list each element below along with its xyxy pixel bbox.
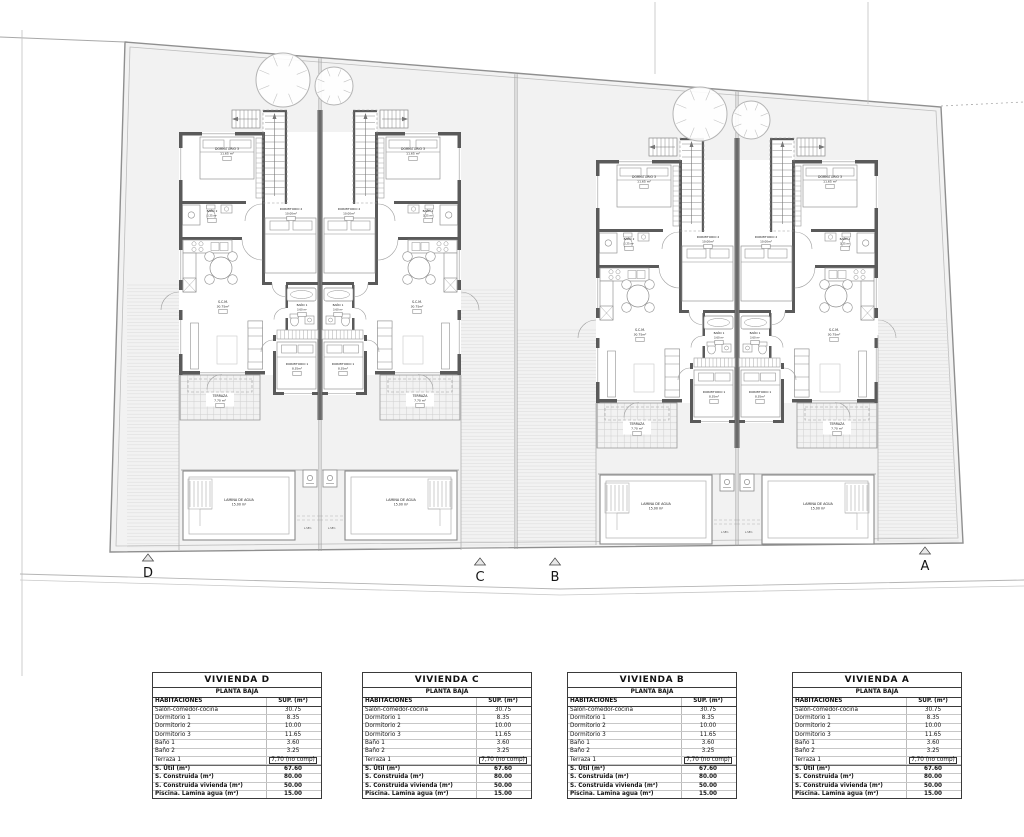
section-arrow-icon bbox=[143, 554, 154, 561]
chair-glyph bbox=[645, 280, 655, 290]
room-tag-box bbox=[841, 246, 849, 250]
table-row: Terraza 17,70 (no comp) bbox=[793, 757, 961, 765]
room-label-cell: Piscina. Lamina agua (m²) bbox=[155, 792, 266, 798]
chair-glyph bbox=[843, 303, 853, 313]
room-label-banio2: BAÑO 23.25 m² bbox=[624, 236, 635, 251]
area-value-cell: 30.75 bbox=[266, 707, 319, 714]
table-row: Baño 23.25 bbox=[568, 749, 736, 757]
bathtub-glyph bbox=[287, 288, 316, 301]
header-superficie: SUP. (m²) bbox=[476, 698, 529, 706]
room-label-banio1: BAÑO 13.60 m² bbox=[333, 302, 344, 317]
table-row: Baño 23.25 bbox=[363, 749, 531, 757]
room-label-cell: Baño 2 bbox=[795, 749, 906, 755]
area-value-cell: 7,70 (no comp) bbox=[681, 757, 734, 764]
room-label-cell: Dormitorio 2 bbox=[795, 724, 906, 730]
table-row: Dormitorio 18.35 bbox=[153, 715, 321, 723]
room-label-cell: Baño 2 bbox=[365, 749, 476, 755]
pool-equipment-box bbox=[720, 474, 734, 491]
room-label-banio2: BAÑO 23.25 m² bbox=[840, 236, 851, 251]
room-label-cell: S. Construida (m²) bbox=[795, 775, 906, 781]
room-tag-box bbox=[223, 156, 231, 160]
table-row: Salón-comedor-cocina30.75 bbox=[568, 707, 736, 715]
header-superficie: SUP. (m²) bbox=[681, 698, 734, 706]
section-marker-label: C bbox=[475, 570, 484, 585]
room-tag-box bbox=[216, 403, 224, 407]
pool-equipment-box bbox=[323, 470, 337, 487]
room-name-text: BAÑO 1 bbox=[714, 330, 725, 335]
room-area-text: 11.65 m² bbox=[406, 151, 420, 155]
bed-glyph-dormitorio-2 bbox=[265, 218, 316, 273]
area-value-cell: 8.35 bbox=[906, 715, 959, 722]
chair-glyph bbox=[228, 252, 238, 262]
area-value-cell: 3.25 bbox=[476, 749, 529, 756]
area-value-cell: 7,70 (no comp) bbox=[906, 757, 959, 764]
table-row: S. Construida vivienda (m²)50.00 bbox=[363, 783, 531, 791]
room-area-text: 8.35m² bbox=[709, 394, 719, 398]
room-label-cell: Terraza 1 bbox=[365, 758, 476, 764]
room-label-cell: S. Construida (m²) bbox=[365, 775, 476, 781]
room-tag-box bbox=[339, 371, 347, 375]
table-row: Baño 23.25 bbox=[793, 749, 961, 757]
room-label-banio1: BAÑO 13.60 m² bbox=[297, 302, 308, 317]
area-value-cell: 67.60 bbox=[906, 766, 959, 773]
area-value-cell: 80.00 bbox=[476, 774, 529, 781]
room-label-banio1: BAÑO 13.60 m² bbox=[750, 330, 761, 345]
room-label-terraza: TERRAZA7.70 m² bbox=[206, 393, 234, 408]
room-label-terraza: TERRAZA7.70 m² bbox=[406, 393, 434, 408]
table-title: VIVIENDA A bbox=[793, 673, 961, 688]
area-value-cell: 11.65 bbox=[906, 732, 959, 739]
room-area-text: 3.25 m² bbox=[207, 213, 217, 217]
chair-glyph bbox=[205, 252, 215, 262]
table-row: Dormitorio 210.00 bbox=[363, 724, 531, 732]
adjacent-boundary-line bbox=[0, 37, 125, 42]
area-value-cell: 3.25 bbox=[906, 749, 959, 756]
room-area-text: 30.75m² bbox=[828, 332, 842, 336]
area-value-cell: 50.00 bbox=[906, 783, 959, 790]
chair-glyph bbox=[426, 275, 436, 285]
pool-section-note: L.SEC. bbox=[328, 526, 336, 530]
table-row: Dormitorio 311.65 bbox=[793, 732, 961, 740]
room-tag-box bbox=[219, 309, 227, 313]
area-value-cell: 3.60 bbox=[681, 740, 734, 747]
table-row: Salón-comedor-cocina30.75 bbox=[363, 707, 531, 715]
area-value-cell: 8.35 bbox=[476, 715, 529, 722]
table-row: Dormitorio 311.65 bbox=[363, 732, 531, 740]
table-row: Dormitorio 210.00 bbox=[568, 724, 736, 732]
room-label-cell: Dormitorio 1 bbox=[570, 716, 681, 722]
area-value-cell: 3.25 bbox=[681, 749, 734, 756]
section-arrow-icon bbox=[475, 558, 486, 565]
section-arrow-icon bbox=[550, 558, 561, 565]
room-area-text: 8.35m² bbox=[755, 394, 765, 398]
room-area-text: 30.75m² bbox=[411, 304, 425, 308]
section-marker-a: A bbox=[920, 547, 931, 574]
bathtub-glyph bbox=[704, 316, 733, 329]
room-label-terraza: TERRAZA7.70 m² bbox=[623, 421, 651, 436]
chair-glyph bbox=[622, 303, 632, 313]
table-row: Terraza 17,70 (no comp) bbox=[363, 757, 531, 765]
room-name-text: BAÑO 1 bbox=[297, 302, 308, 307]
sink-glyph bbox=[825, 233, 836, 241]
chair-glyph bbox=[820, 280, 830, 290]
room-label-cell: Salón-comedor-cocina bbox=[155, 708, 266, 714]
sink-glyph bbox=[305, 316, 314, 324]
sink-glyph bbox=[408, 205, 419, 213]
room-tag-box bbox=[287, 216, 295, 220]
room-label-dormitorio1: DORMITORIO 18.35m² bbox=[329, 361, 357, 376]
pool-equipment-box bbox=[740, 474, 754, 491]
chair-glyph bbox=[426, 252, 436, 262]
room-label-cell: Terraza 1 bbox=[795, 758, 906, 764]
room-area-text: 15.00 m² bbox=[232, 502, 247, 506]
room-area-text: 7.70 m² bbox=[214, 398, 227, 402]
bed-glyph-dormitorio-2 bbox=[741, 246, 792, 301]
room-area-text: 3.60 m² bbox=[297, 307, 307, 311]
table-row: Dormitorio 311.65 bbox=[153, 732, 321, 740]
tv-sideboard-glyph bbox=[191, 323, 199, 369]
pool-equipment-box bbox=[303, 470, 317, 487]
chair-glyph bbox=[843, 280, 853, 290]
section-markers: D C B A bbox=[143, 547, 931, 585]
table-header-row: HABITACIONESSUP. (m²) bbox=[793, 698, 961, 707]
area-value-cell: 30.75 bbox=[681, 707, 734, 714]
room-label-cell: S. Construida vivienda (m²) bbox=[795, 784, 906, 790]
boxed-value: 7,70 (no comp) bbox=[684, 757, 733, 765]
boxed-value: 7,70 (no comp) bbox=[479, 757, 528, 765]
chair-glyph bbox=[622, 280, 632, 290]
pool-section-note: L.SEC. bbox=[721, 530, 729, 534]
room-tag-box bbox=[826, 184, 834, 188]
header-habitaciones: HABITACIONES bbox=[795, 699, 906, 705]
table-header-row: HABITACIONESSUP. (m²) bbox=[363, 698, 531, 707]
room-label-cell: S. Útil (m²) bbox=[155, 767, 266, 773]
room-label-cell: S. Útil (m²) bbox=[365, 767, 476, 773]
table-row: S. Construida (m²)80.00 bbox=[793, 774, 961, 782]
table-row: Baño 13.60 bbox=[793, 740, 961, 748]
area-value-cell: 67.60 bbox=[266, 766, 319, 773]
room-label-dormitorio1: DORMITORIO 18.35m² bbox=[283, 361, 311, 376]
room-area-text: 15.00 m² bbox=[811, 506, 826, 510]
room-label-cell: S. Construida (m²) bbox=[570, 775, 681, 781]
table-row: Salón-comedor-cocina30.75 bbox=[793, 707, 961, 715]
section-marker-label: D bbox=[143, 566, 153, 581]
bed-glyph-dormitorio-2 bbox=[324, 218, 375, 273]
table-row: Piscina. Lamina agua (m²)15.00 bbox=[793, 791, 961, 798]
sink-glyph bbox=[221, 205, 232, 213]
room-tag-box bbox=[413, 309, 421, 313]
room-tag-box bbox=[640, 184, 648, 188]
room-label-cell: Dormitorio 3 bbox=[365, 733, 476, 739]
room-area-text: 30.75m² bbox=[634, 332, 648, 336]
room-area-text: 3.60 m² bbox=[750, 335, 760, 339]
chair-glyph bbox=[645, 303, 655, 313]
table-row: Baño 23.25 bbox=[153, 749, 321, 757]
room-tag-box bbox=[751, 340, 759, 344]
drawing-sheet: DORMITORIO 311.65 m²BAÑO 23.25 m²DORMITO… bbox=[0, 0, 1024, 837]
room-tag-box bbox=[334, 312, 342, 316]
area-value-cell: 15.00 bbox=[681, 791, 734, 798]
room-name-text: BAÑO 1 bbox=[333, 302, 344, 307]
room-label-banio2: BAÑO 23.25 m² bbox=[423, 208, 434, 223]
room-area-text: 3.25 m² bbox=[624, 241, 634, 245]
room-label-cell: S. Construida vivienda (m²) bbox=[365, 784, 476, 790]
table-row: Baño 13.60 bbox=[153, 740, 321, 748]
area-value-cell: 10.00 bbox=[476, 724, 529, 731]
room-tag-box bbox=[636, 337, 644, 341]
room-area-text: 8.35m² bbox=[292, 366, 302, 370]
room-label-cell: Salón-comedor-cocina bbox=[570, 708, 681, 714]
room-label-terraza: TERRAZA7.70 m² bbox=[823, 421, 851, 436]
tree-icon bbox=[315, 67, 353, 105]
table-title: VIVIENDA C bbox=[363, 673, 531, 688]
section-marker-b: B bbox=[550, 558, 561, 585]
area-value-cell: 3.60 bbox=[906, 740, 959, 747]
area-table-vivienda-c: VIVIENDA CPLANTA BAJAHABITACIONESSUP. (m… bbox=[362, 672, 532, 799]
room-label-cell: S. Construida vivienda (m²) bbox=[155, 784, 266, 790]
room-tag-box bbox=[416, 403, 424, 407]
room-area-text: 7.70 m² bbox=[831, 426, 844, 430]
area-value-cell: 7,70 (no comp) bbox=[476, 757, 529, 764]
table-row: Piscina. Lamina agua (m²)15.00 bbox=[568, 791, 736, 798]
room-name-text: BAÑO 2 bbox=[423, 208, 434, 213]
tree-icon bbox=[256, 53, 310, 107]
chair-glyph bbox=[205, 275, 215, 285]
area-value-cell: 15.00 bbox=[906, 791, 959, 798]
room-label-banio2: BAÑO 23.25 m² bbox=[207, 208, 218, 223]
room-label-cell: Baño 1 bbox=[365, 741, 476, 747]
room-label-cell: Dormitorio 1 bbox=[795, 716, 906, 722]
room-area-text: 8.35m² bbox=[338, 366, 348, 370]
room-area-text: 30.75m² bbox=[217, 304, 231, 308]
boxed-value: 7,70 (no comp) bbox=[269, 757, 318, 765]
section-arrow-icon bbox=[920, 547, 931, 554]
room-name-text: BAÑO 2 bbox=[207, 208, 218, 213]
area-value-cell: 10.00 bbox=[266, 724, 319, 731]
area-value-cell: 7,70 (no comp) bbox=[266, 757, 319, 764]
room-tag-box bbox=[293, 371, 301, 375]
room-label-cell: Dormitorio 3 bbox=[155, 733, 266, 739]
room-area-text: 15.00 m² bbox=[394, 502, 409, 506]
chair-glyph bbox=[403, 275, 413, 285]
area-value-cell: 30.75 bbox=[476, 707, 529, 714]
room-label-cell: S. Útil (m²) bbox=[570, 767, 681, 773]
section-marker-label: B bbox=[551, 570, 560, 585]
sink-glyph bbox=[326, 316, 335, 324]
table-title: VIVIENDA B bbox=[568, 673, 736, 688]
table-row: S. Construida vivienda (m²)50.00 bbox=[793, 783, 961, 791]
room-label-cell: Terraza 1 bbox=[570, 758, 681, 764]
area-value-cell: 15.00 bbox=[476, 791, 529, 798]
area-value-cell: 15.00 bbox=[266, 791, 319, 798]
room-area-text: 3.25 m² bbox=[840, 241, 850, 245]
room-label-cell: Dormitorio 2 bbox=[570, 724, 681, 730]
room-area-text: 15.00 m² bbox=[649, 506, 664, 510]
area-value-cell: 30.75 bbox=[906, 707, 959, 714]
table-subtitle: PLANTA BAJA bbox=[568, 688, 736, 699]
table-row: Terraza 17,70 (no comp) bbox=[153, 757, 321, 765]
chair-glyph bbox=[403, 252, 413, 262]
room-tag-box bbox=[409, 156, 417, 160]
area-value-cell: 67.60 bbox=[476, 766, 529, 773]
table-row: Baño 13.60 bbox=[568, 740, 736, 748]
room-area-text: 3.60 m² bbox=[333, 307, 343, 311]
room-tag-box bbox=[830, 337, 838, 341]
area-value-cell: 8.35 bbox=[681, 715, 734, 722]
bathtub-glyph bbox=[324, 288, 353, 301]
room-label-cell: Salón-comedor-cocina bbox=[365, 708, 476, 714]
room-area-text: 10.00m² bbox=[702, 239, 714, 243]
room-label-cell: Baño 1 bbox=[795, 741, 906, 747]
room-area-text: 11.65 m² bbox=[823, 179, 837, 183]
area-value-cell: 8.35 bbox=[266, 715, 319, 722]
area-value-cell: 11.65 bbox=[476, 732, 529, 739]
area-value-cell: 80.00 bbox=[681, 774, 734, 781]
room-tag-box bbox=[715, 340, 723, 344]
sink-glyph bbox=[722, 344, 731, 352]
room-label-cell: Dormitorio 3 bbox=[795, 733, 906, 739]
tv-sideboard-glyph bbox=[859, 351, 867, 397]
road-line-upper bbox=[20, 574, 1024, 589]
area-value-cell: 50.00 bbox=[266, 783, 319, 790]
room-tag-box bbox=[762, 244, 770, 248]
room-tag-box bbox=[833, 431, 841, 435]
sink-glyph bbox=[743, 344, 752, 352]
room-label-cell: Terraza 1 bbox=[155, 758, 266, 764]
room-label-dormitorio1: DORMITORIO 18.35m² bbox=[746, 389, 774, 404]
section-marker-label: A bbox=[921, 559, 930, 574]
room-label-cell: S. Útil (m²) bbox=[795, 767, 906, 773]
area-value-cell: 10.00 bbox=[906, 724, 959, 731]
room-area-text: 11.65 m² bbox=[637, 179, 651, 183]
room-label-cell: Dormitorio 1 bbox=[155, 716, 266, 722]
room-area-text: 10.00m² bbox=[760, 239, 772, 243]
chair-glyph bbox=[820, 303, 830, 313]
room-name-text: BAÑO 2 bbox=[840, 236, 851, 241]
area-table-vivienda-a: VIVIENDA APLANTA BAJAHABITACIONESSUP. (m… bbox=[792, 672, 962, 799]
tv-sideboard-glyph bbox=[442, 323, 450, 369]
room-label-dormitorio1: DORMITORIO 18.35m² bbox=[700, 389, 728, 404]
room-area-text: 3.60 m² bbox=[714, 335, 724, 339]
room-label-cell: Piscina. Lamina agua (m²) bbox=[365, 792, 476, 798]
table-subtitle: PLANTA BAJA bbox=[793, 688, 961, 699]
room-label-cell: S. Construida (m²) bbox=[155, 775, 266, 781]
table-row: Piscina. Lamina agua (m²)15.00 bbox=[153, 791, 321, 798]
table-row: Dormitorio 18.35 bbox=[568, 715, 736, 723]
bathtub-glyph bbox=[741, 316, 770, 329]
header-habitaciones: HABITACIONES bbox=[155, 699, 266, 705]
header-habitaciones: HABITACIONES bbox=[365, 699, 476, 705]
tree-icon bbox=[732, 101, 770, 139]
room-area-text: 10.00m² bbox=[343, 211, 355, 215]
bed-glyph-dormitorio-2 bbox=[682, 246, 733, 301]
area-value-cell: 3.60 bbox=[476, 740, 529, 747]
header-habitaciones: HABITACIONES bbox=[570, 699, 681, 705]
area-value-cell: 80.00 bbox=[906, 774, 959, 781]
area-value-cell: 3.60 bbox=[266, 740, 319, 747]
area-value-cell: 11.65 bbox=[681, 732, 734, 739]
table-row: Piscina. Lamina agua (m²)15.00 bbox=[363, 791, 531, 798]
area-value-cell: 10.00 bbox=[681, 724, 734, 731]
table-row: S. Construida vivienda (m²)50.00 bbox=[153, 783, 321, 791]
table-header-row: HABITACIONESSUP. (m²) bbox=[153, 698, 321, 707]
area-value-cell: 3.25 bbox=[266, 749, 319, 756]
table-row: Dormitorio 18.35 bbox=[793, 715, 961, 723]
area-value-cell: 80.00 bbox=[266, 774, 319, 781]
room-tag-box bbox=[710, 399, 718, 403]
room-area-text: 7.70 m² bbox=[414, 398, 427, 402]
section-marker-d: D bbox=[143, 554, 154, 581]
table-header-row: HABITACIONESSUP. (m²) bbox=[568, 698, 736, 707]
room-name-text: BAÑO 1 bbox=[750, 330, 761, 335]
room-label-cell: Dormitorio 3 bbox=[570, 733, 681, 739]
room-area-text: 10.00m² bbox=[285, 211, 297, 215]
room-label-cell: Baño 1 bbox=[570, 741, 681, 747]
table-row: Terraza 17,70 (no comp) bbox=[568, 757, 736, 765]
room-area-text: 11.65 m² bbox=[220, 151, 234, 155]
table-row: S. Construida (m²)80.00 bbox=[153, 774, 321, 782]
area-table-vivienda-d: VIVIENDA DPLANTA BAJAHABITACIONESSUP. (m… bbox=[152, 672, 322, 799]
room-tag-box bbox=[208, 218, 216, 222]
area-value-cell: 50.00 bbox=[681, 783, 734, 790]
room-tag-box bbox=[298, 312, 306, 316]
room-name-text: BAÑO 2 bbox=[624, 236, 635, 241]
header-superficie: SUP. (m²) bbox=[266, 698, 319, 706]
room-label-cell: Dormitorio 2 bbox=[365, 724, 476, 730]
area-table-vivienda-b: VIVIENDA BPLANTA BAJAHABITACIONESSUP. (m… bbox=[567, 672, 737, 799]
room-area-text: 7.70 m² bbox=[631, 426, 644, 430]
tv-sideboard-glyph bbox=[608, 351, 616, 397]
room-label-cell: Salón-comedor-cocina bbox=[795, 708, 906, 714]
boxed-value: 7,70 (no comp) bbox=[909, 757, 958, 765]
sink-glyph bbox=[638, 233, 649, 241]
room-label-banio1: BAÑO 13.60 m² bbox=[714, 330, 725, 345]
table-title: VIVIENDA D bbox=[153, 673, 321, 688]
header-superficie: SUP. (m²) bbox=[906, 698, 959, 706]
room-label-cell: Baño 1 bbox=[155, 741, 266, 747]
table-row: Dormitorio 210.00 bbox=[793, 724, 961, 732]
room-tag-box bbox=[424, 218, 432, 222]
table-row: Dormitorio 311.65 bbox=[568, 732, 736, 740]
area-value-cell: 50.00 bbox=[476, 783, 529, 790]
chair-glyph bbox=[228, 275, 238, 285]
room-area-text: 3.25 m² bbox=[423, 213, 433, 217]
section-marker-c: C bbox=[475, 558, 486, 585]
room-label-cell: Baño 2 bbox=[155, 749, 266, 755]
room-label-cell: Piscina. Lamina agua (m²) bbox=[570, 792, 681, 798]
room-tag-box bbox=[756, 399, 764, 403]
room-label-cell: Dormitorio 1 bbox=[365, 716, 476, 722]
table-subtitle: PLANTA BAJA bbox=[363, 688, 531, 699]
table-row: Dormitorio 210.00 bbox=[153, 724, 321, 732]
boundary-extension-dashed bbox=[941, 102, 1024, 106]
pool-section-note: L.SEC. bbox=[745, 530, 753, 534]
table-row: S. Construida (m²)80.00 bbox=[363, 774, 531, 782]
table-subtitle: PLANTA BAJA bbox=[153, 688, 321, 699]
room-label-cell: Dormitorio 2 bbox=[155, 724, 266, 730]
room-tag-box bbox=[704, 244, 712, 248]
area-value-cell: 67.60 bbox=[681, 766, 734, 773]
table-row: Salón-comedor-cocina30.75 bbox=[153, 707, 321, 715]
room-label-cell: Baño 2 bbox=[570, 749, 681, 755]
table-row: S. Construida (m²)80.00 bbox=[568, 774, 736, 782]
area-value-cell: 11.65 bbox=[266, 732, 319, 739]
room-label-cell: S. Construida vivienda (m²) bbox=[570, 784, 681, 790]
tree-icon bbox=[673, 87, 727, 141]
table-row: S. Construida vivienda (m²)50.00 bbox=[568, 783, 736, 791]
room-tag-box bbox=[625, 246, 633, 250]
table-row: Baño 13.60 bbox=[363, 740, 531, 748]
